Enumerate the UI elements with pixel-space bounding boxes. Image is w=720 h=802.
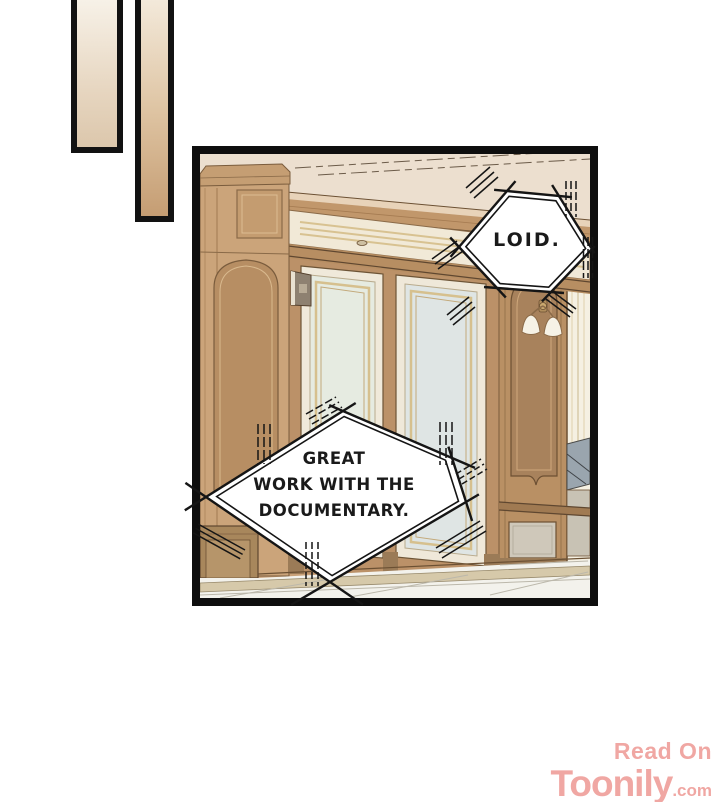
watermark-brand-line: Toonily.com [551,765,712,802]
watermark-brand: Toonily [551,763,673,802]
hallway-opening [567,254,590,574]
speech-bubble-great-work: GREAT WORK WITH THE DOCUMENTARY. [234,446,434,524]
loid-dialogue: LOID. [493,229,561,251]
right-pillar [499,258,567,572]
comic-page: LOID. GREAT WORK WITH THE DOCUMENTARY. R… [0,0,720,802]
great-dialogue-line-1: GREAT [234,446,434,472]
interior-scene-art [200,154,590,598]
toonily-watermark: Read On Toonily.com [551,740,712,802]
great-dialogue-line-2: WORK WITH THE [234,472,434,498]
door-sign-plaque [291,271,311,306]
comic-panel [192,146,598,606]
watermark-read-on: Read On [551,740,712,763]
decor-panel-strip-2 [135,0,174,222]
bench [567,438,590,490]
great-dialogue-line-3: DOCUMENTARY. [234,498,434,524]
watermark-domain-suffix: .com [672,781,712,800]
decor-panel-strip-1 [71,0,123,153]
speech-bubble-loid: LOID. [462,229,592,251]
